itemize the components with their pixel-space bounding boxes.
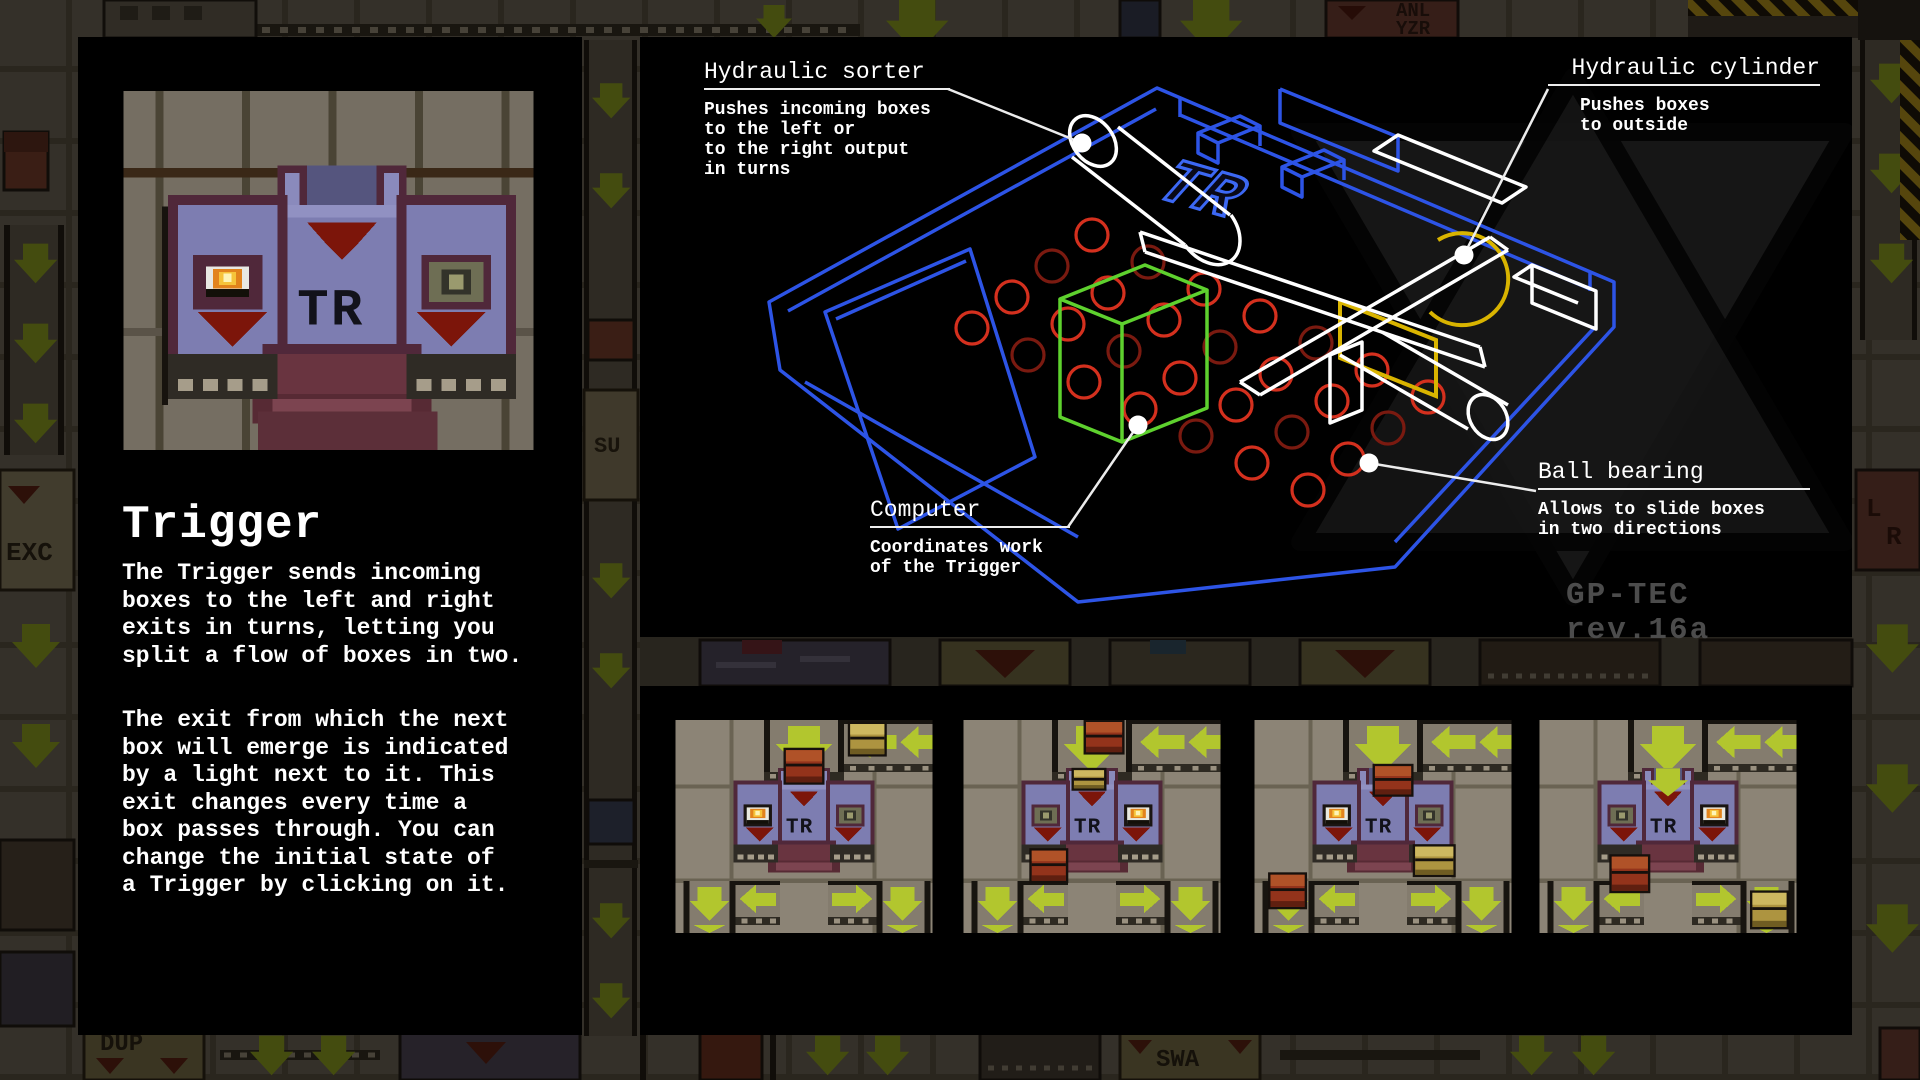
- callout-title: Hydraulic sorter: [704, 59, 950, 90]
- callout-description: Allows to slide boxes in two directions: [1538, 500, 1810, 540]
- callout-dot-bearing: [1360, 454, 1379, 473]
- computer-box: [1060, 265, 1207, 442]
- example-screenshot-4: [1539, 720, 1797, 933]
- revision-watermark: GP-TEC rev.16a: [1566, 578, 1852, 648]
- callout-dot-cylinder: [1455, 246, 1474, 265]
- example-screenshot-1: [675, 720, 933, 933]
- callout-description: Pushes incoming boxes to the left or to …: [704, 100, 950, 180]
- description-paragraph: The Trigger sends incoming boxes to the …: [122, 560, 552, 670]
- page-title: Trigger: [122, 499, 322, 551]
- lit-lamp-left: [200, 261, 254, 303]
- example-screenshot-2: [963, 720, 1221, 933]
- examples-panel: [640, 686, 1852, 1035]
- blueprint-panel: ​ TR: [640, 37, 1852, 637]
- callout-title: Computer: [870, 497, 1070, 528]
- screen: ANL YZR EXC SU L R: [0, 0, 1920, 1080]
- callout-dot-sorter: [1073, 134, 1092, 153]
- callout-computer: Computer Coordinates work of the Trigger: [870, 497, 1070, 578]
- example-screenshot-3: [1254, 720, 1512, 933]
- callout-title: Ball bearing: [1538, 459, 1810, 490]
- trigger-portrait: [122, 91, 535, 450]
- callout-hydraulic-cylinder: Hydraulic cylinder Pushes boxes to outsi…: [1548, 55, 1820, 136]
- callout-hydraulic-sorter: Hydraulic sorter Pushes incoming boxes t…: [704, 59, 950, 180]
- callout-description: Coordinates work of the Trigger: [870, 538, 1070, 578]
- callout-description: Pushes boxes to outside: [1548, 96, 1820, 136]
- callout-dot-computer: [1129, 416, 1148, 435]
- description-paragraph: The exit from which the next box will em…: [122, 707, 552, 900]
- callout-title: Hydraulic cylinder: [1548, 55, 1820, 86]
- info-panel: Trigger The Trigger sends incoming boxes…: [78, 37, 582, 1035]
- callout-ball-bearing: Ball bearing Allows to slide boxes in tw…: [1538, 459, 1810, 540]
